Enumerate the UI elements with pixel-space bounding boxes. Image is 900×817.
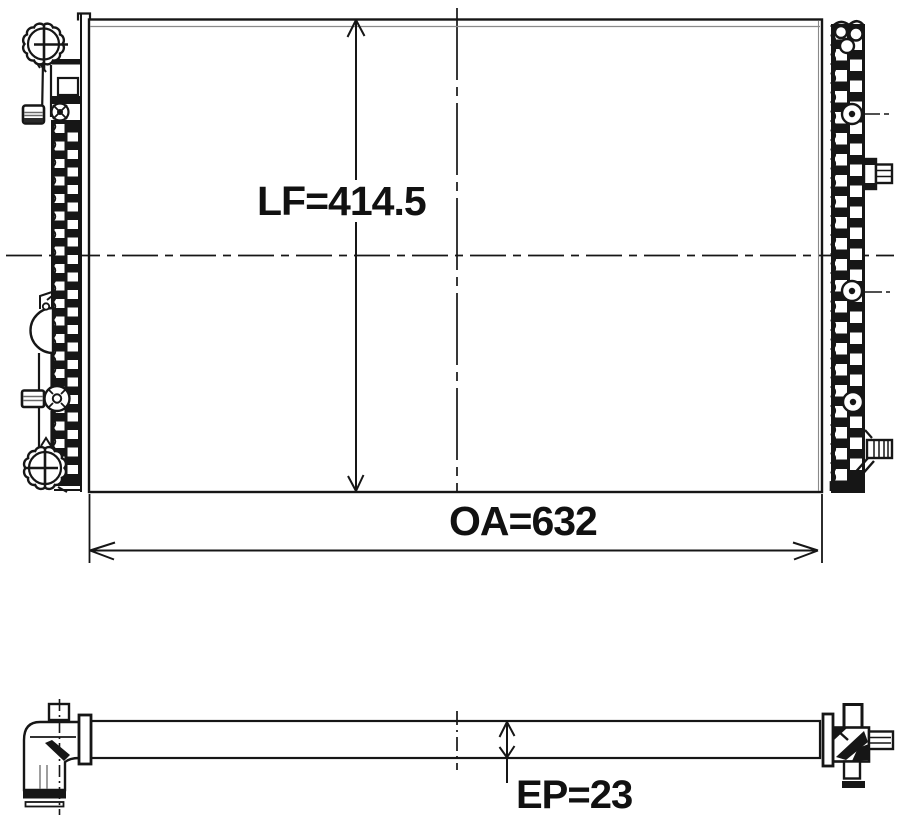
svg-text:LF=414.5: LF=414.5	[257, 178, 426, 224]
svg-text:EP=23: EP=23	[516, 773, 632, 817]
svg-text:OA=632: OA=632	[449, 498, 597, 544]
